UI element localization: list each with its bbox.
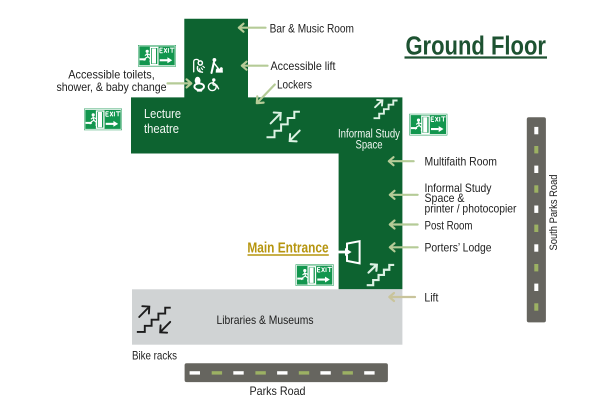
svg-text:Parks Road: Parks Road	[250, 384, 306, 398]
svg-text:Porters’ Lodge: Porters’ Lodge	[425, 241, 492, 255]
svg-text:Libraries & Museums: Libraries & Museums	[217, 313, 314, 327]
svg-text:Accessible lift: Accessible lift	[271, 59, 337, 73]
svg-text:Post Room: Post Room	[425, 218, 473, 232]
svg-text:Lockers: Lockers	[277, 77, 312, 91]
svg-text:Bike racks: Bike racks	[132, 348, 177, 362]
svg-text:shower, & baby change: shower, & baby change	[57, 80, 167, 94]
svg-text:Bar & Music Room: Bar & Music Room	[270, 22, 355, 36]
svg-text:Space: Space	[356, 139, 383, 151]
svg-text:South Parks Road: South Parks Road	[548, 175, 560, 251]
svg-text:Lift: Lift	[424, 290, 439, 304]
svg-text:Main Entrance: Main Entrance	[247, 241, 328, 257]
svg-text:printer / photocopier: printer / photocopier	[425, 201, 517, 215]
svg-text:Lecture: Lecture	[144, 107, 181, 121]
svg-text:theatre: theatre	[144, 122, 179, 136]
svg-text:Multifaith Room: Multifaith Room	[425, 155, 498, 169]
